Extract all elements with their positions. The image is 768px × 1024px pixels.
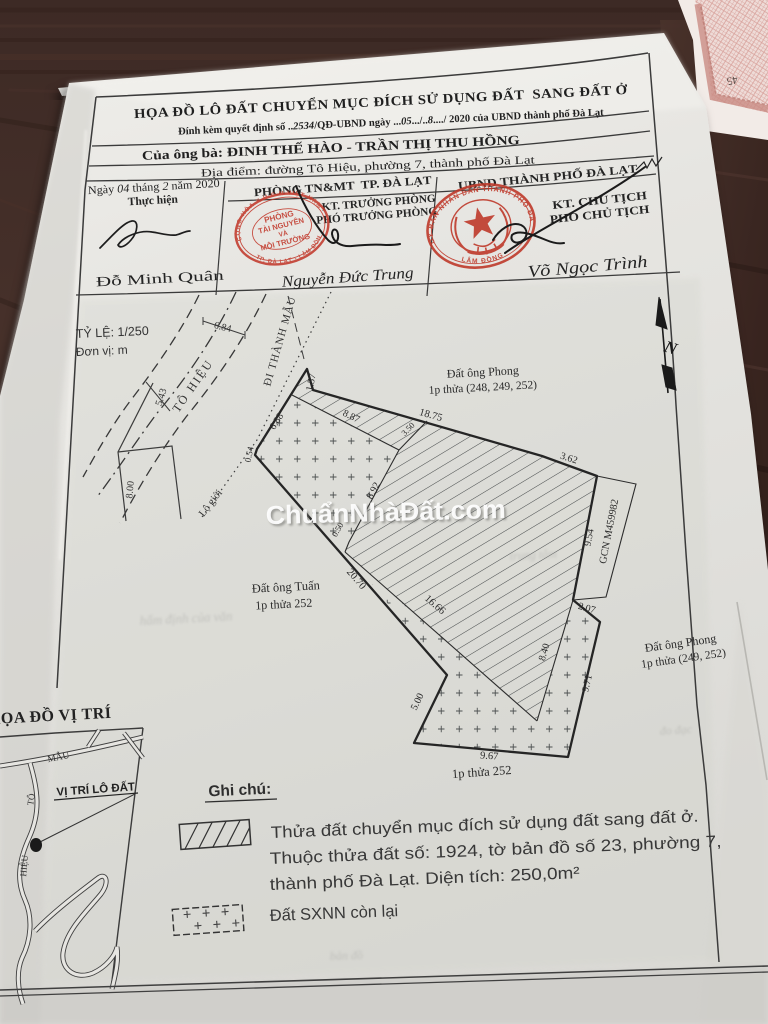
svg-text:8.00: 8.00 xyxy=(124,480,137,499)
svg-text:TÔ: TÔ xyxy=(25,792,37,806)
svg-text:HIỆU: HIỆU xyxy=(18,854,30,877)
svg-text:1p thửa 252: 1p thửa 252 xyxy=(255,596,313,613)
svg-text:Ghi chú:: Ghi chú: xyxy=(208,781,272,801)
svg-text:trung tâm: trung tâm xyxy=(509,547,557,563)
svg-text:TỶ LỆ: 1/250: TỶ LỆ: 1/250 xyxy=(75,323,149,341)
svg-text:9.67: 9.67 xyxy=(480,750,499,762)
svg-text:đo đạc: đo đạc xyxy=(659,722,693,738)
svg-text:ChuẩnNhàĐất.com: ChuẩnNhàĐất.com xyxy=(265,494,506,530)
svg-text:Đơn vị: m: Đơn vị: m xyxy=(76,343,128,359)
svg-text:bản đồ: bản đồ xyxy=(330,948,363,963)
